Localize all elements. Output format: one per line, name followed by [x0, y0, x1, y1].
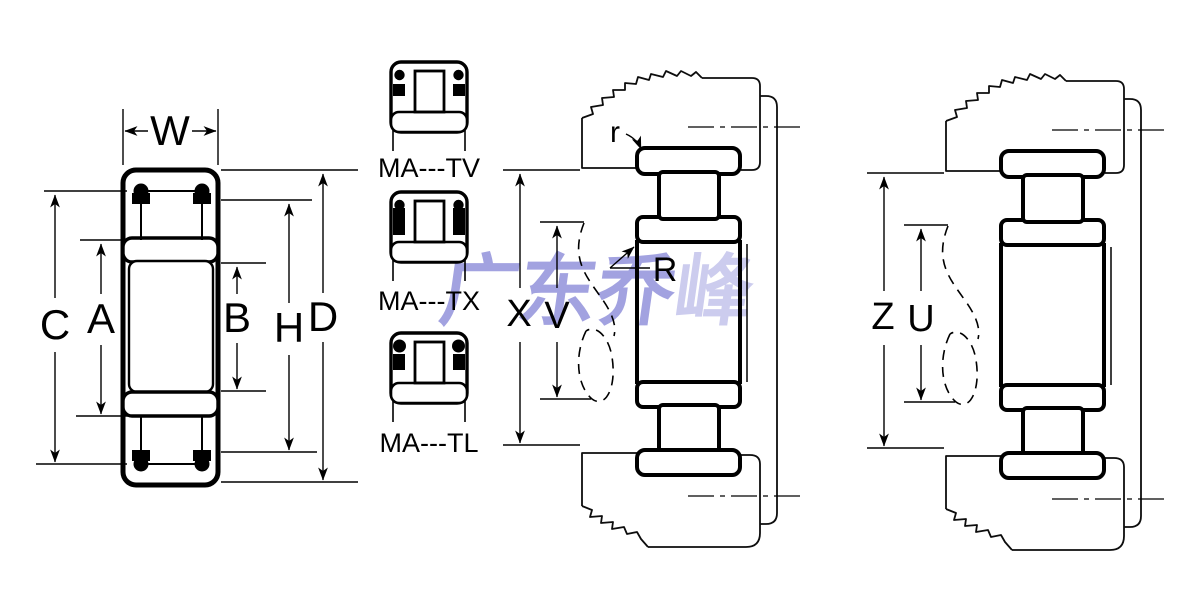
dimension-label-d: D — [308, 293, 338, 340]
dimension-label-w: W — [150, 107, 190, 154]
type-icon-ma-tl: MA---TL — [380, 333, 479, 458]
dimension-w: W — [123, 107, 218, 165]
dimension-label-b: B — [223, 294, 251, 341]
watermark-text-tail: 峰 — [669, 247, 759, 335]
dimension-label-u: U — [907, 298, 934, 340]
left-bearing-figure: W C A B H — [36, 107, 358, 485]
right-mounting-figure: Z U — [867, 74, 1164, 550]
dimension-label-z: Z — [871, 296, 894, 338]
drawing-canvas: W C A B H — [0, 0, 1200, 600]
type-label-ma-tl: MA---TL — [380, 428, 479, 458]
type-label-ma-tv: MA---TV — [378, 153, 480, 183]
fillet-callout-r: r — [610, 116, 641, 149]
watermark: 广东乔峰 — [436, 252, 759, 330]
fillet-label-r: r — [610, 116, 620, 149]
dimension-label-a: A — [87, 295, 115, 342]
type-icon-ma-tv: MA---TV — [378, 62, 480, 183]
dimension-label-h: H — [274, 304, 304, 351]
bearing-cross-section — [123, 170, 218, 485]
dimension-b: B — [221, 263, 266, 391]
dimension-label-c: C — [40, 301, 70, 348]
watermark-text: 广东乔 — [435, 247, 681, 335]
